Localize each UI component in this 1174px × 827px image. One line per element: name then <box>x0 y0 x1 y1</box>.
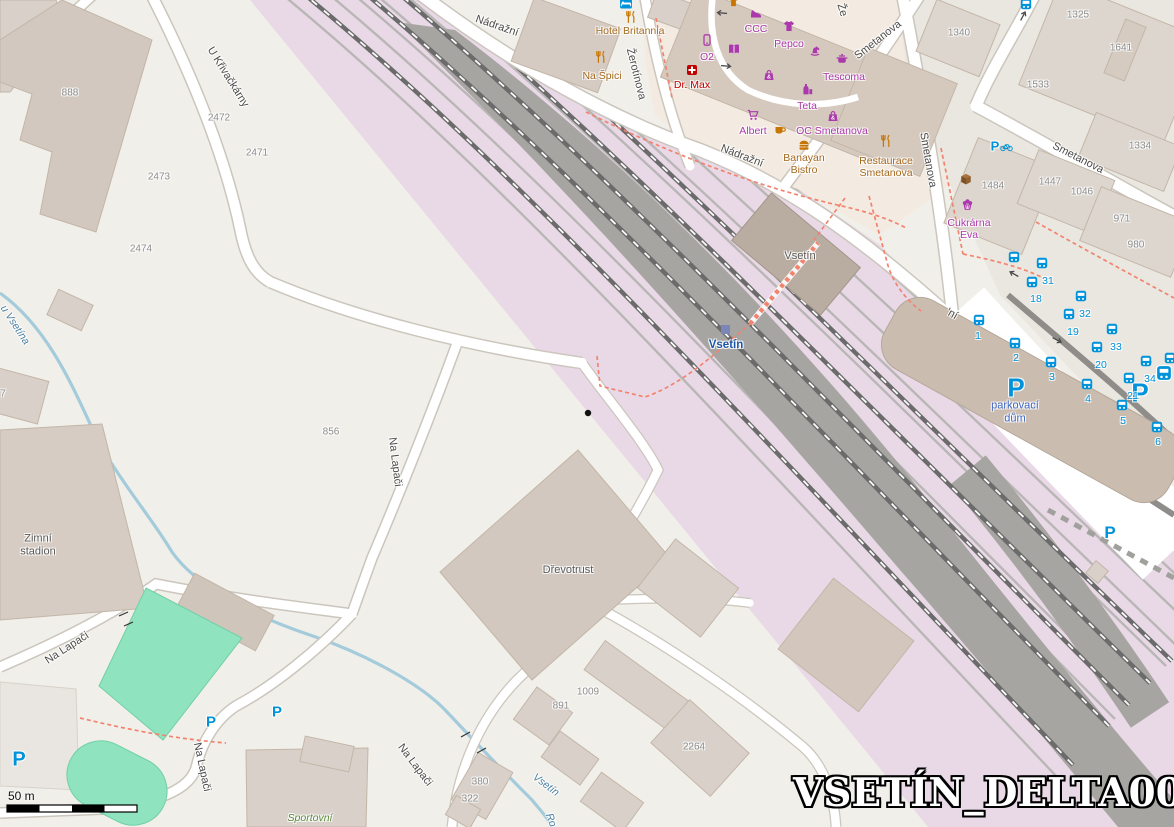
railway-station-icon <box>721 325 730 334</box>
housenumber: 1340 <box>948 28 970 39</box>
banayan-bistro-label: Banayan Bistro <box>773 152 835 176</box>
housenumber: 1533 <box>1027 80 1049 91</box>
mobile-phone-shop-icon <box>701 34 713 46</box>
bus-icon <box>1091 341 1103 353</box>
housenumber: 1641 <box>1110 43 1132 54</box>
scale-label: 50 m <box>8 789 35 803</box>
o2-label: O2 <box>700 51 714 63</box>
housenumber: 380 <box>472 777 489 788</box>
houseware-pot-icon <box>836 52 848 64</box>
bus-icon <box>1123 372 1135 384</box>
cafe-cup-icon <box>774 123 786 135</box>
bus-icon <box>1020 0 1032 10</box>
bus-icon <box>1045 356 1057 368</box>
bus-platform-number: 31 <box>1042 275 1054 287</box>
poi-dot-icon <box>585 410 591 416</box>
bus-icon <box>1063 308 1075 320</box>
bus-platform-number: 4 <box>1085 393 1091 405</box>
bus-platform-number: 34 <box>1144 373 1156 385</box>
book-shop-icon <box>728 43 740 55</box>
housenumber: 1046 <box>1071 187 1093 198</box>
sportovni-label: Sportovní <box>288 812 333 824</box>
housenumber: 2473 <box>148 172 170 183</box>
cukrarna-eva-label: Cukrárna Eva <box>938 217 1000 241</box>
zimni-stadion-label: Zimní stadion <box>10 532 66 557</box>
parking-icon: P <box>206 714 216 731</box>
housenumber: 971 <box>1114 214 1131 225</box>
housenumber: 891 <box>553 701 570 712</box>
tescoma-label: Tescoma <box>823 71 865 83</box>
map-canvas[interactable]: & <box>0 0 1174 827</box>
chemist-shop-icon <box>801 83 813 95</box>
shoe-shop-icon <box>750 7 762 19</box>
housenumber: 2474 <box>130 244 152 255</box>
hotel-britannia-label: Hotel Britannia <box>596 25 665 37</box>
housenumber: 980 <box>1128 240 1145 251</box>
housenumber: 1009 <box>577 687 599 698</box>
bus-icon <box>1106 323 1118 335</box>
na-spici-label: Na Špici <box>582 70 621 82</box>
restaurace-smetanova-label: Restaurace Smetanova <box>846 155 926 179</box>
housenumber: 2472 <box>208 113 230 124</box>
bus-platform-number: 5 <box>1120 415 1126 427</box>
parcel-locker-icon <box>959 172 973 186</box>
bus-icon <box>1026 276 1038 288</box>
bus-icon <box>1075 290 1087 302</box>
drevotrust-label: Dřevotrust <box>543 564 594 576</box>
parking-icon: P <box>1104 523 1115 543</box>
housenumber: 1334 <box>1129 141 1151 152</box>
bus-platform-number: 2 <box>1013 352 1019 364</box>
teta-label: Teta <box>797 100 817 112</box>
fast-food-burger-icon <box>798 139 810 151</box>
housenumber: 856 <box>323 427 340 438</box>
confectionery-cupcake-icon <box>961 198 974 211</box>
housenumber: 2471 <box>246 148 268 159</box>
bus-platform-number: 32 <box>1079 308 1091 320</box>
station-building-label: Vsetín <box>784 250 815 262</box>
housenumber: 888 <box>62 88 79 99</box>
housenumber: 1447 <box>1039 177 1061 188</box>
bus-icon <box>1151 421 1163 433</box>
housenumber: 2264 <box>683 742 705 753</box>
housenumber: 7 <box>0 389 6 400</box>
bus-platform-number: 6 <box>1155 436 1161 448</box>
housenumber: 1325 <box>1067 10 1089 21</box>
bus-icon <box>1009 337 1021 349</box>
housenumber: 322 <box>462 794 479 805</box>
pepco-label: Pepco <box>774 38 804 50</box>
bicycle-icon <box>1000 142 1013 152</box>
parking-icon: P <box>272 704 282 721</box>
mall-bag-icon <box>763 69 775 81</box>
housenumber: 1484 <box>982 181 1004 192</box>
dr-max-label: Dr. Max <box>674 79 710 91</box>
watermark: VSETÍN_DELTA001 <box>793 770 1165 816</box>
bus-platform-number: 19 <box>1067 326 1079 338</box>
restaurant-fork-knife-icon <box>595 51 607 63</box>
bus-icon <box>1081 378 1093 390</box>
scale-bar <box>7 805 137 812</box>
bus-platform-number: 20 <box>1095 359 1107 371</box>
bus-icon <box>1008 251 1020 263</box>
bus-icon <box>973 314 985 326</box>
hotel-bed-icon <box>619 0 633 9</box>
oc-smetanova-label: OC Smetanova <box>796 125 868 137</box>
restaurant-fork-knife-icon <box>880 135 892 147</box>
ccc-label: CCC <box>745 23 768 35</box>
bus-platform-number: 33 <box>1110 341 1122 353</box>
bus-platform-number: 21 <box>1127 390 1139 402</box>
mall-bag-icon <box>827 110 839 122</box>
station-stop-label: Vsetín <box>709 339 744 351</box>
clothes-shop-icon <box>728 0 739 7</box>
bicycle-parking-icon: P <box>991 139 1000 154</box>
bus-station-icon <box>1156 365 1172 381</box>
bus-platform-number: 3 <box>1049 371 1055 383</box>
albert-label: Albert <box>739 125 766 137</box>
bus-icon <box>1036 257 1048 269</box>
bus-platform-number: 1 <box>975 330 981 342</box>
parking-icon: P <box>12 749 25 772</box>
bus-icon <box>1140 355 1152 367</box>
clothes-shop-icon <box>783 20 795 32</box>
parking-house-label: parkovací dům <box>979 399 1051 424</box>
bus-platform-number: 18 <box>1030 293 1042 305</box>
bus-icon <box>1164 352 1174 364</box>
restaurant-fork-knife-icon <box>625 11 637 23</box>
pharmacy-cross-icon <box>686 64 698 76</box>
toy-shop-icon <box>809 45 821 57</box>
supermarket-cart-icon <box>747 109 759 121</box>
